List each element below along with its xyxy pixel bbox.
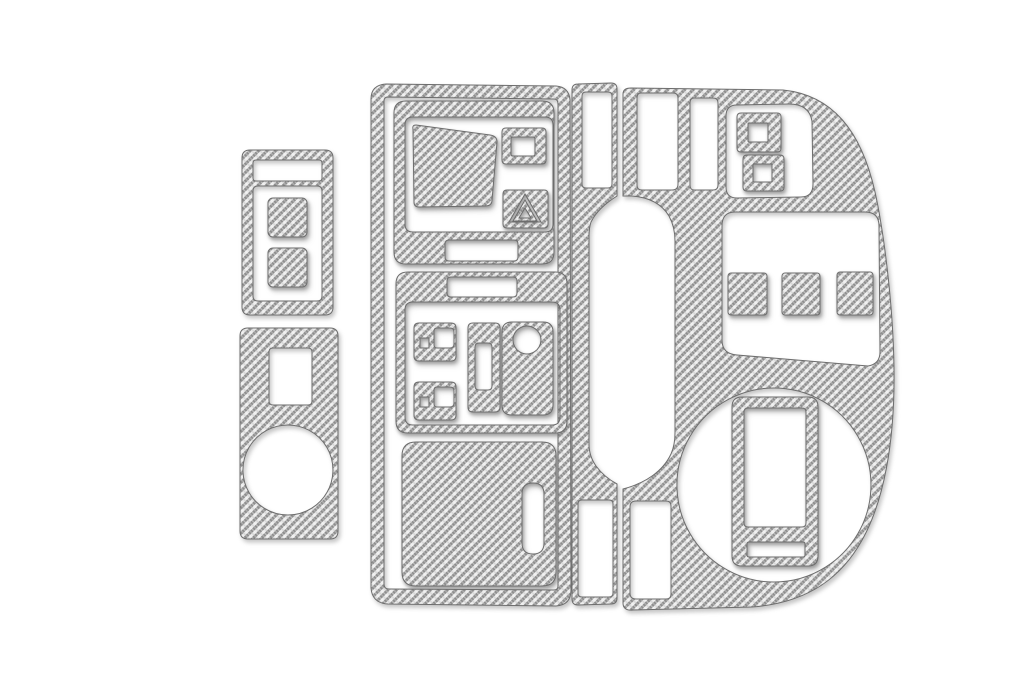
display-blank-insert [413,125,497,207]
console-button-insert-3 [837,272,873,315]
dash-trim-kit-photo [0,0,1024,681]
console-button-insert-2 [782,273,820,315]
switch-button-insert-top [268,198,307,237]
photo-canvas [0,0,1024,681]
switch-button-insert-bottom [268,248,307,287]
console-button-insert-1 [728,273,767,315]
